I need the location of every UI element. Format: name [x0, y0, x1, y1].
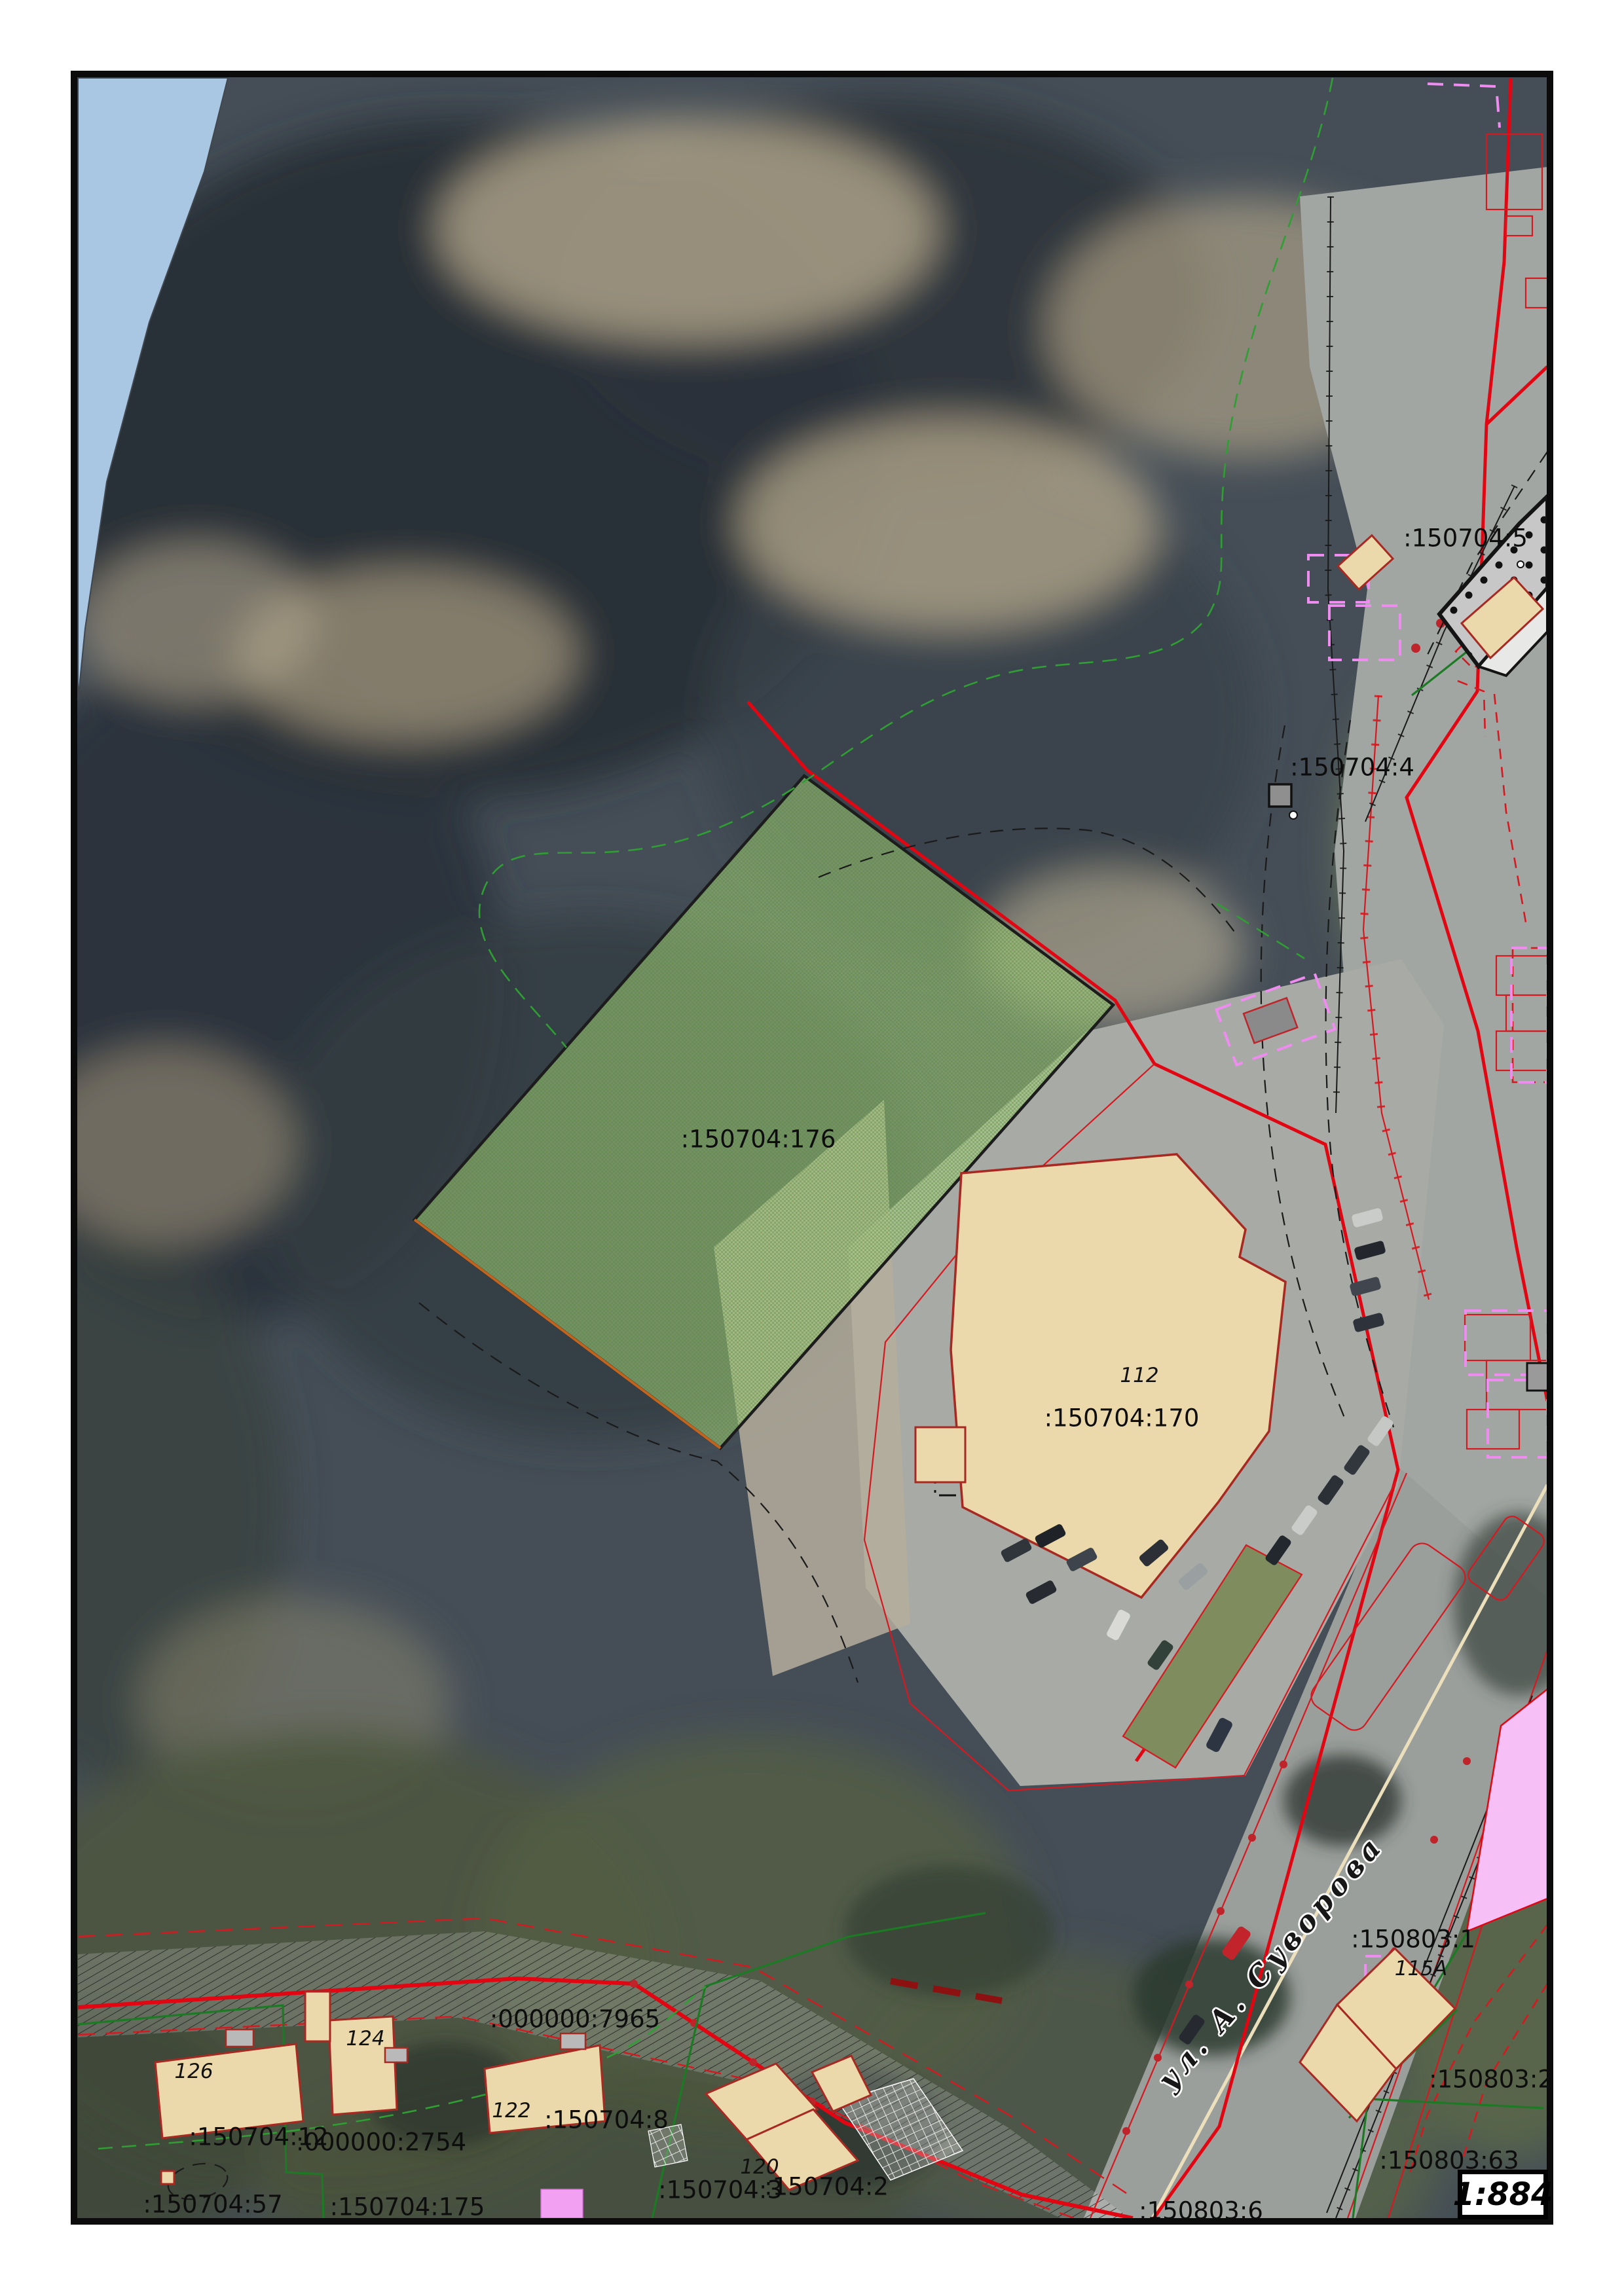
parcel-label-150704-57: :150704:57	[143, 2191, 282, 2219]
parcel-label-000000-7965: :000000:7965	[490, 2005, 660, 2033]
building-124-annex	[305, 1992, 330, 2041]
gray-square-structure	[1527, 1363, 1547, 1391]
scale-indicator: 1:884	[1458, 2170, 1548, 2219]
building-124-shed	[385, 2048, 407, 2062]
magenta-small-rect	[541, 2189, 583, 2218]
parcel-label-150803-6: :150803:6	[1139, 2197, 1263, 2225]
scale-value: 1:884	[1453, 2176, 1553, 2213]
cadastral-map-sheet: { "map": { "type": "cadastral-plan-over-…	[0, 0, 1624, 2296]
parcel-label-150704-4: :150704:4	[1290, 754, 1414, 782]
building-126-annex	[226, 2030, 253, 2047]
house-number-124: 124	[346, 2027, 384, 2050]
house-number-120: 120	[740, 2155, 779, 2179]
small-square-246	[161, 2171, 174, 2184]
parcel-label-150704-8: :150704:8	[544, 2106, 669, 2134]
parcel-label-150704-12: :150704:12	[189, 2123, 328, 2151]
parcel-label-150704-5: :150704:5	[1403, 524, 1528, 553]
house-number-122: 122	[492, 2099, 530, 2123]
parcel-label-150704-170: :150704:170	[1044, 1404, 1200, 1432]
building-122-annex	[561, 2033, 585, 2049]
parcel-label-150704-175: :150704:175	[330, 2193, 485, 2221]
parcel-label-150803-2: :150803:2	[1429, 2066, 1553, 2094]
building-112-annex	[915, 1427, 965, 1482]
parcel-label-150704-176: :150704:176	[681, 1125, 836, 1154]
parcel-label-150704-2: :150704:2	[764, 2173, 889, 2201]
house-number-112: 112	[1120, 1364, 1158, 1387]
house-number-126: 126	[174, 2060, 213, 2083]
parcel-label-150803-1: :150803:1	[1351, 1925, 1475, 1954]
parcel-label-150704-3: :150704:3	[658, 2176, 783, 2204]
house-number-115a: 115A	[1395, 1957, 1447, 1980]
